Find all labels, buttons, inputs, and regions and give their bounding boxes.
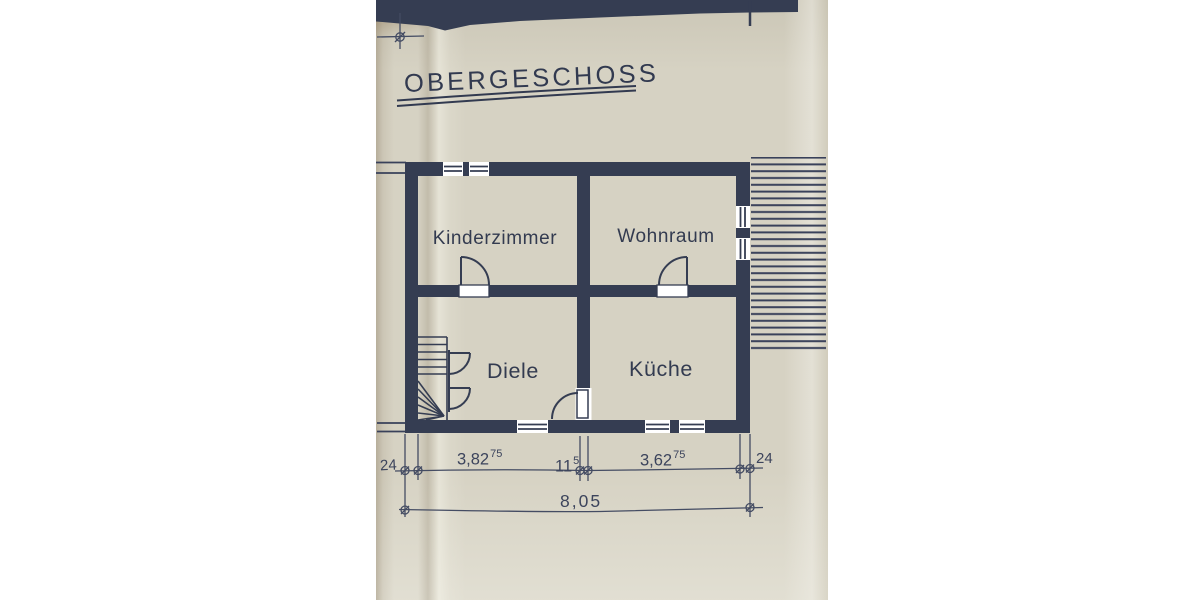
window-icon-top [443, 162, 489, 176]
window-icon-right-lower [736, 238, 750, 260]
dim-label-wall-left: 24 [380, 457, 398, 475]
roof-hatching [751, 157, 826, 353]
room-label-kueche: Küche [625, 357, 697, 382]
door-swing-icon-wohnraum [657, 257, 688, 297]
dim-value: 3,82 [457, 451, 489, 469]
dim-label-width-right: 3,6275 [640, 450, 684, 471]
upper-drawing-edge [376, 0, 798, 31]
stairs-icon [418, 337, 447, 420]
dim-label-wall-right: 24 [756, 450, 773, 467]
room-label-wohnraum: Wohnraum [610, 226, 722, 248]
window-icon-bottom-diele [517, 420, 548, 433]
wall-left [405, 162, 418, 433]
dim-label-wall-middle: 115 [555, 456, 578, 477]
doors [449, 257, 688, 420]
wall-stub-left [376, 163, 406, 432]
dim-label-width-left: 3,8275 [457, 449, 501, 470]
dim-value: 11 [555, 458, 572, 476]
photo-of-floor-plan: OBERGESCHOSS Kinderzimmer Wohnraum Diele… [0, 0, 1200, 600]
door-swing-icon-kinderzimmer [459, 257, 489, 297]
room-label-kinderzimmer: Kinderzimmer [428, 228, 562, 250]
dim-sup: 5 [573, 455, 579, 467]
dim-value: 3,62 [640, 452, 672, 470]
dim-label-total-width: 8,05 [560, 491, 602, 512]
window-icon-right-upper [736, 206, 750, 228]
room-label-diele: Diele [479, 359, 547, 384]
door-swing-icon-kueche [552, 388, 592, 420]
wall-right [736, 162, 750, 433]
dim-sup: 75 [673, 449, 685, 461]
wall-middle-vertical-upper [577, 176, 590, 285]
dim-sup: 75 [490, 448, 502, 460]
door-swing-icon-stair-upper [449, 353, 470, 374]
door-swing-icon-stair-lower [449, 350, 470, 412]
